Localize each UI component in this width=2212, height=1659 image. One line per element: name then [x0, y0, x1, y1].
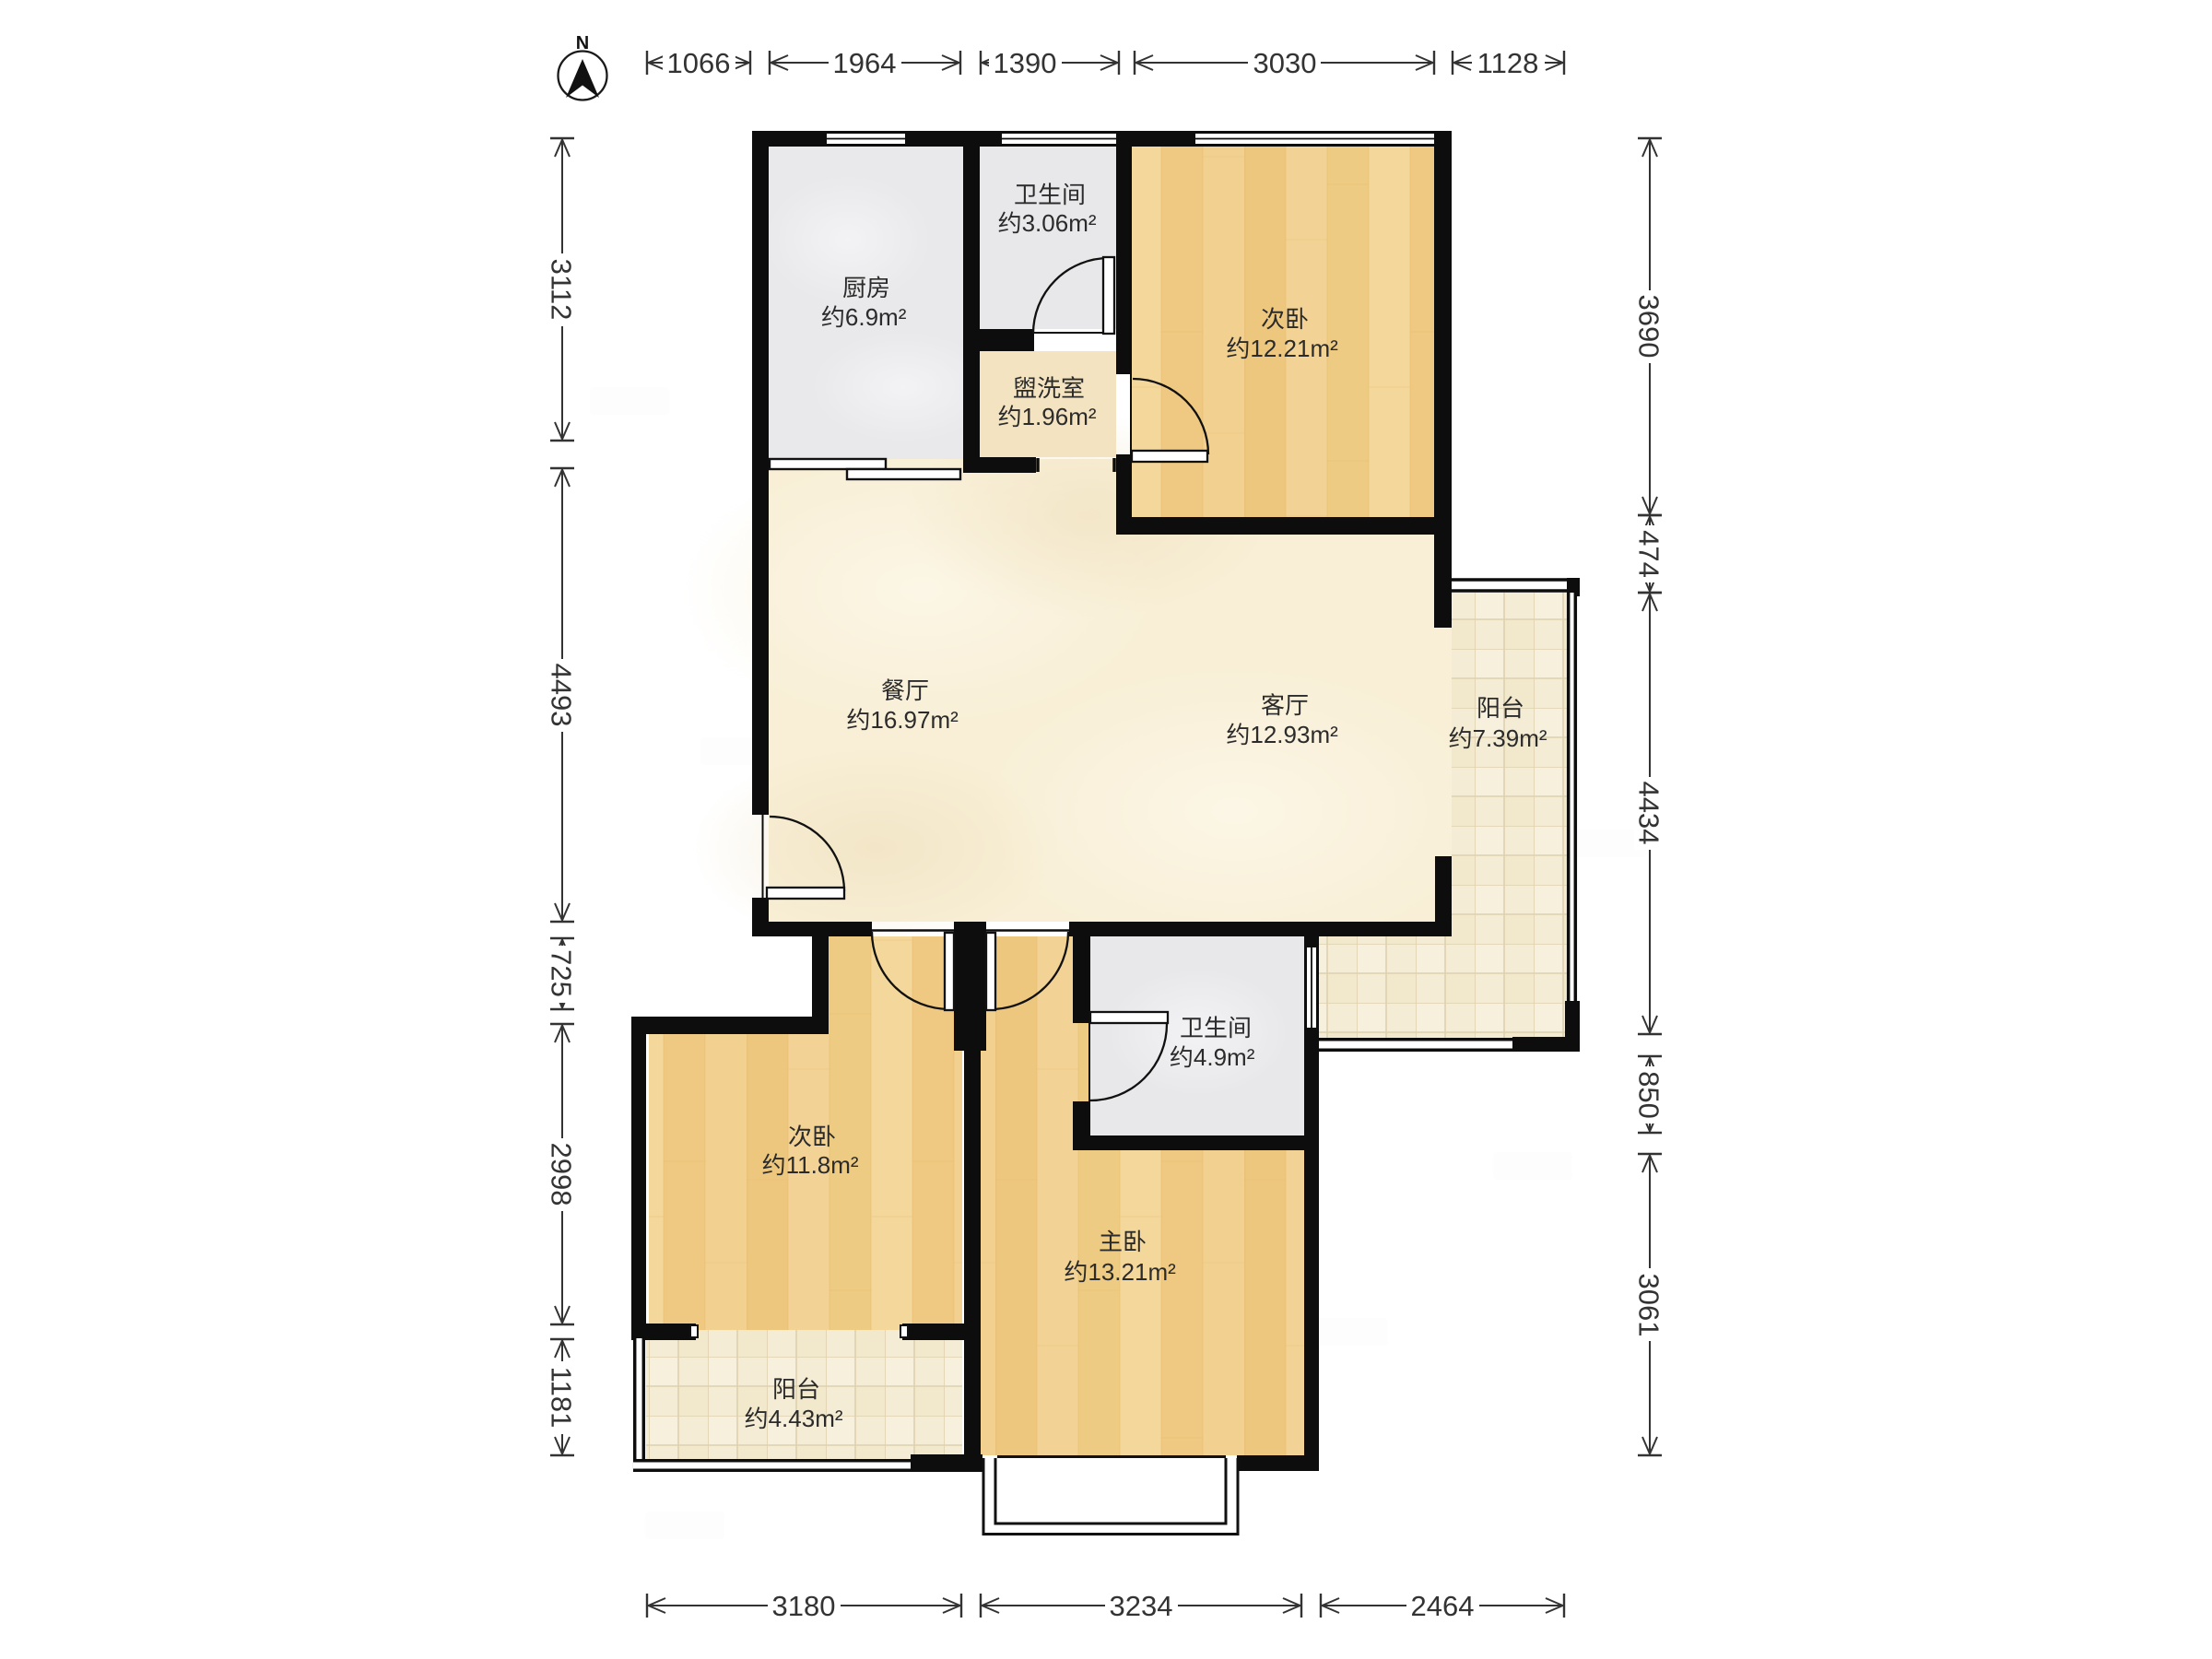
- svg-text:3.06m²: 3.06m²: [1022, 209, 1097, 237]
- svg-text:6.9m²: 6.9m²: [845, 303, 907, 331]
- svg-text:2464: 2464: [1411, 1590, 1475, 1622]
- svg-text:N: N: [576, 33, 589, 53]
- svg-text:2998: 2998: [546, 1143, 578, 1206]
- svg-text:3112: 3112: [546, 259, 578, 321]
- svg-text:1.96m²: 1.96m²: [1022, 403, 1097, 430]
- svg-text:474: 474: [1633, 530, 1665, 578]
- svg-text:3061: 3061: [1633, 1274, 1665, 1337]
- svg-text:3180: 3180: [772, 1590, 836, 1622]
- svg-text:1066: 1066: [667, 47, 731, 79]
- svg-text:725: 725: [546, 949, 578, 997]
- svg-text:4.9m²: 4.9m²: [1194, 1043, 1255, 1071]
- svg-text:4493: 4493: [546, 664, 578, 727]
- svg-text:11.8m²: 11.8m²: [786, 1151, 859, 1179]
- svg-text:4434: 4434: [1633, 782, 1665, 845]
- svg-text:12.21m²: 12.21m²: [1250, 335, 1338, 362]
- svg-text:16.97m²: 16.97m²: [870, 706, 959, 734]
- svg-text:1964: 1964: [833, 47, 897, 79]
- svg-text:4.43m²: 4.43m²: [769, 1405, 843, 1432]
- svg-text:7.39m²: 7.39m²: [1473, 724, 1547, 752]
- svg-text:1128: 1128: [1477, 47, 1539, 79]
- svg-text:850: 850: [1633, 1071, 1665, 1119]
- svg-text:1181: 1181: [546, 1367, 578, 1429]
- svg-text:3030: 3030: [1253, 47, 1317, 79]
- svg-text:3690: 3690: [1633, 295, 1665, 359]
- svg-text:3234: 3234: [1110, 1590, 1173, 1622]
- svg-text:12.93m²: 12.93m²: [1250, 721, 1338, 748]
- svg-text:13.21m²: 13.21m²: [1088, 1258, 1176, 1286]
- svg-text:1390: 1390: [994, 47, 1057, 79]
